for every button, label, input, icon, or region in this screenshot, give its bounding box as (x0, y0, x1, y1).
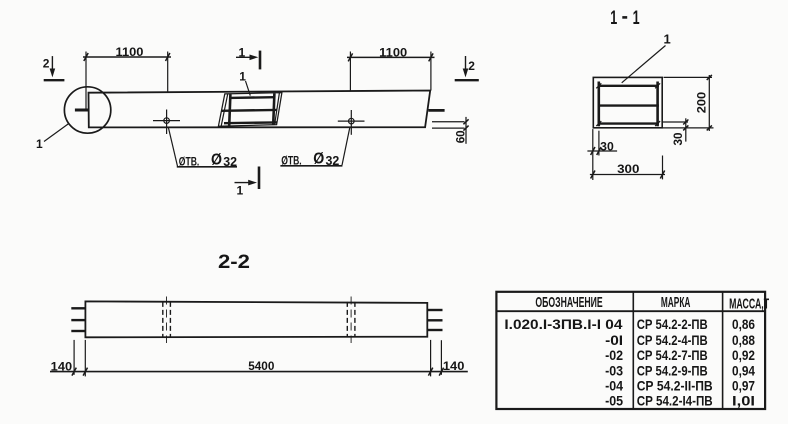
svg-text:СР 54.2-4-ПВ: СР 54.2-4-ПВ (637, 332, 708, 348)
svg-text:1100: 1100 (379, 45, 407, 59)
svg-text:30: 30 (600, 142, 614, 154)
svg-text:140: 140 (443, 359, 465, 373)
svg-text:1: 1 (239, 45, 246, 59)
svg-text:200: 200 (695, 91, 709, 113)
svg-text:Ø: Ø (211, 152, 222, 169)
svg-text:СР 54.2-I4-ПВ: СР 54.2-I4-ПВ (637, 393, 713, 409)
svg-text:I,0I: I,0I (732, 393, 755, 409)
svg-text:СР 54.2-II-ПВ: СР 54.2-II-ПВ (637, 378, 713, 394)
svg-text:МАРКА: МАРКА (661, 294, 691, 311)
svg-text:МАССА,Т: МАССА,Т (729, 296, 769, 313)
svg-text:140: 140 (51, 359, 73, 373)
svg-text:32: 32 (326, 153, 340, 168)
svg-text:0,86: 0,86 (732, 316, 755, 332)
svg-text:300: 300 (617, 162, 640, 176)
svg-text:0,92: 0,92 (732, 347, 755, 363)
svg-text:5400: 5400 (248, 359, 275, 373)
svg-text:I.020.I-3ПВ.I-I 04: I.020.I-3ПВ.I-I 04 (504, 316, 622, 332)
svg-text:ØТВ.: ØТВ. (281, 153, 302, 167)
svg-text:30: 30 (671, 132, 685, 145)
svg-text:1: 1 (610, 8, 617, 29)
svg-text:1: 1 (633, 8, 640, 29)
svg-text:1: 1 (36, 137, 43, 151)
svg-text:-03: -03 (605, 362, 623, 378)
svg-text:60: 60 (453, 130, 467, 143)
svg-text:0,94: 0,94 (732, 362, 755, 378)
svg-text:1100: 1100 (116, 45, 144, 59)
svg-text:2: 2 (468, 59, 475, 73)
svg-text:1: 1 (664, 32, 671, 47)
svg-text:32: 32 (223, 154, 237, 169)
svg-text:-04: -04 (605, 378, 623, 394)
svg-text:-05: -05 (605, 393, 623, 409)
svg-text:0,88: 0,88 (732, 332, 755, 348)
svg-text:2: 2 (43, 57, 50, 71)
svg-text:0,97: 0,97 (732, 378, 755, 394)
svg-text:-0I: -0I (605, 332, 623, 348)
svg-text:ОБОЗНАЧЕНИЕ: ОБОЗНАЧЕНИЕ (535, 294, 602, 311)
svg-text:1: 1 (237, 184, 244, 198)
svg-text:ØТВ.: ØТВ. (179, 154, 200, 168)
svg-text:Ø: Ø (313, 151, 324, 168)
svg-text:-02: -02 (605, 347, 623, 363)
svg-text:СР 54.2-7-ПВ: СР 54.2-7-ПВ (637, 347, 708, 363)
svg-text:СР 54.2-9-ПВ: СР 54.2-9-ПВ (637, 362, 708, 378)
svg-text:СР 54.2-2-ПВ: СР 54.2-2-ПВ (637, 316, 708, 332)
svg-text:2-2: 2-2 (218, 252, 250, 273)
